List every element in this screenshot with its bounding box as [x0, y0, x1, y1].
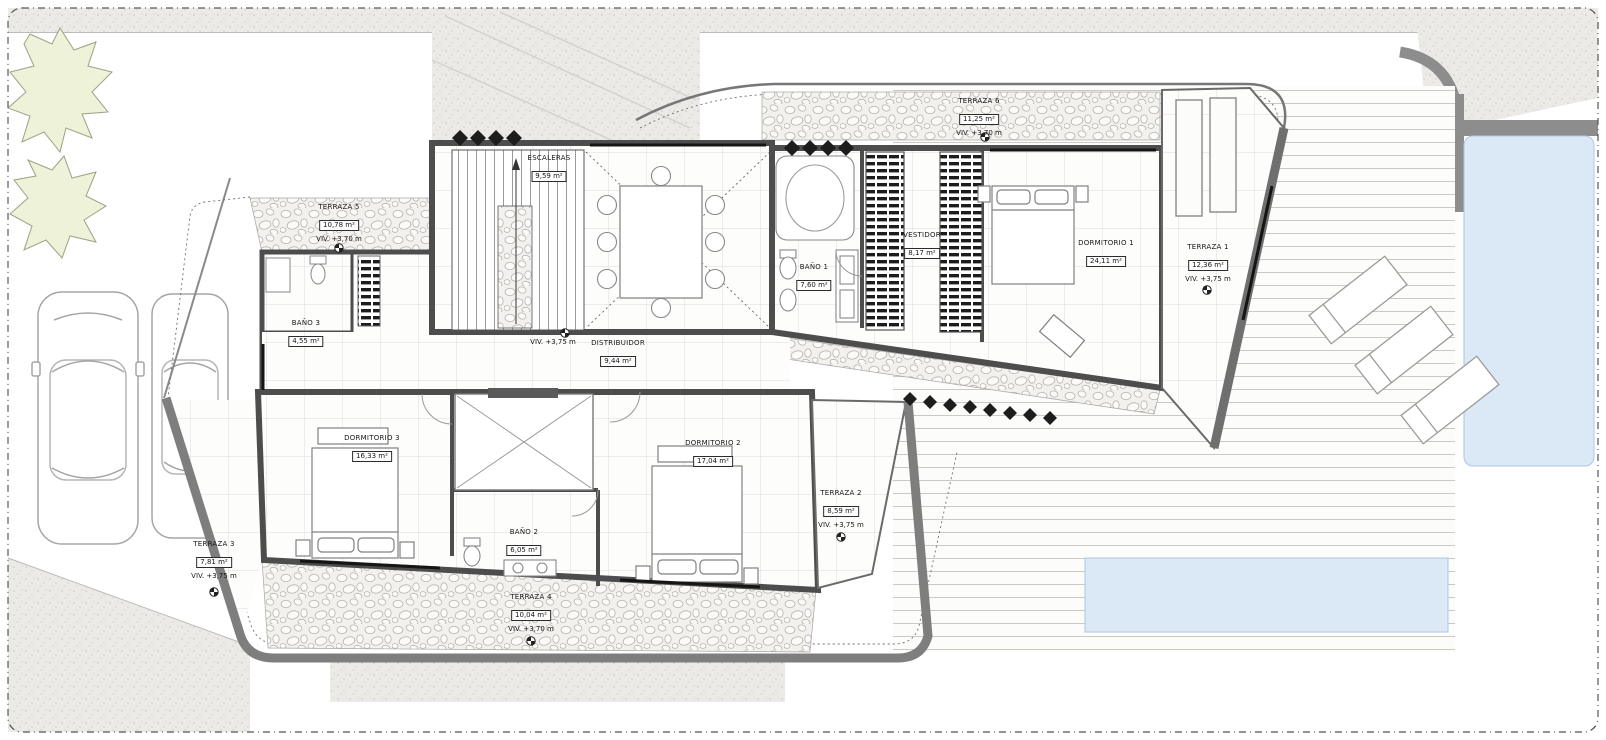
room-area-value: 17,04 m² — [693, 456, 733, 467]
room-label-terraza-2: TERRAZA 2 8,59 m² VIV. +3,75 m — [818, 489, 864, 530]
room-area-value: 9,44 m² — [600, 356, 635, 367]
room-escaleras-living — [432, 143, 772, 332]
room-label-dormitorio-3: DORMITORIO 3 16,33 m² — [344, 434, 400, 464]
room-label-escaleras: ESCALERAS 9,59 m² — [528, 154, 571, 184]
room-label-distribuidor: DISTRIBUIDOR 9,44 m² — [591, 339, 645, 369]
room-label-terraza-3: TERRAZA 3 7,81 m² VIV. +3,75 m — [191, 540, 237, 581]
car-1 — [32, 292, 144, 544]
room-area-value: 24,11 m² — [1086, 256, 1126, 267]
room-area-value: 8,17 m² — [904, 248, 939, 259]
hall-level-marker: VIV. +3,75 m — [530, 336, 576, 347]
room-label-bano-3: BAÑO 3 4,55 m² — [288, 319, 323, 349]
room-area-value: 7,81 m² — [196, 557, 231, 568]
room-area-value: 12,36 m² — [1188, 260, 1228, 271]
pool-right — [1464, 136, 1594, 466]
stair-void — [455, 388, 593, 490]
room-area-value: 10,04 m² — [511, 610, 551, 621]
room-distribuidor — [262, 332, 790, 395]
room-area-value: 16,33 m² — [352, 451, 392, 462]
room-area-value: 4,55 m² — [288, 336, 323, 347]
bottom-paving-band — [330, 660, 785, 702]
entrance-ramp — [432, 8, 700, 145]
room-area-value: 9,59 m² — [531, 171, 566, 182]
room-area-value: 8,59 m² — [823, 506, 858, 517]
pool-bottom — [1085, 558, 1448, 632]
floor-plan-drawing — [0, 0, 1606, 740]
room-area-value: 7,60 m² — [796, 280, 831, 291]
room-label-bano-2: BAÑO 2 6,05 m² — [506, 528, 541, 558]
bedroom-wing — [258, 388, 818, 590]
skylight-1 — [1176, 100, 1202, 216]
room-label-terraza-6: TERRAZA 6 11,25 m² VIV. +3,70 m — [956, 97, 1002, 138]
room-label-dormitorio-1: DORMITORIO 1 24,11 m² — [1078, 239, 1134, 269]
room-area-value: 11,25 m² — [959, 114, 999, 125]
room-label-terraza-4: TERRAZA 4 10,04 m² VIV. +3,70 m — [508, 593, 554, 634]
room-label-vestidor: VESTIDOR 8,17 m² — [903, 231, 941, 261]
floor-plan-canvas: ESCALERAS 9,59 m² TERRAZA 5 10,78 m² VIV… — [0, 0, 1606, 740]
room-label-dormitorio-2: DORMITORIO 2 17,04 m² — [685, 439, 741, 469]
room-label-terraza-1: TERRAZA 1 12,36 m² VIV. +3,75 m — [1185, 243, 1231, 284]
dining-table — [620, 186, 702, 298]
room-label-terraza-5: TERRAZA 5 10,78 m² VIV. +3,70 m — [316, 203, 362, 244]
road-strip — [8, 8, 1598, 33]
skylight-2 — [1210, 98, 1236, 212]
room-area-value: 10,78 m² — [319, 220, 359, 231]
room-area-value: 6,05 m² — [506, 545, 541, 556]
room-label-bano-1: BAÑO 1 7,60 m² — [796, 263, 831, 293]
